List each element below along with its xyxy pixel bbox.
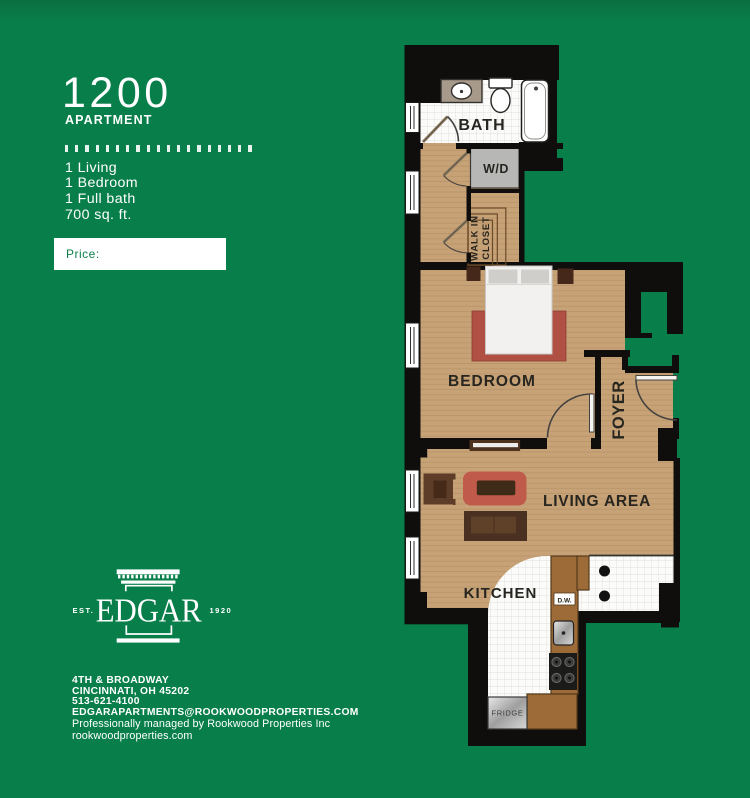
svg-text:WALK IN: WALK IN — [470, 215, 481, 261]
svg-text:LIVING AREA: LIVING AREA — [543, 493, 651, 510]
svg-text:KITCHEN: KITCHEN — [464, 585, 538, 602]
svg-text:BATH: BATH — [458, 117, 505, 134]
svg-text:CLOSET: CLOSET — [481, 216, 492, 259]
svg-text:FOYER: FOYER — [610, 380, 628, 439]
svg-text:FRIDGE: FRIDGE — [492, 709, 524, 718]
svg-text:W/D: W/D — [483, 162, 509, 176]
svg-text:D.W.: D.W. — [557, 598, 571, 605]
svg-text:BEDROOM: BEDROOM — [448, 373, 536, 390]
